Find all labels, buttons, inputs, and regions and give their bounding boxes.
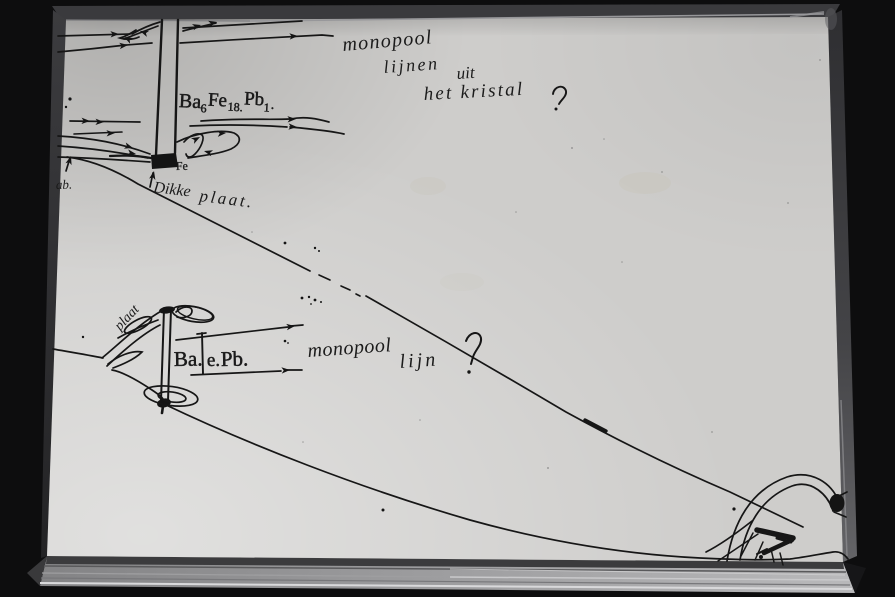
svg-text:lijn: lijn [399,348,439,373]
svg-text:18.: 18. [227,100,243,115]
svg-text:1: 1 [263,100,270,114]
svg-text:Fe: Fe [176,159,188,173]
svg-text:Ba: Ba [178,90,201,113]
svg-text:lijnen: lijnen [383,53,440,77]
svg-text:Pb: Pb [244,88,265,110]
svg-text:ab.: ab. [56,177,73,192]
svg-text:Fe: Fe [207,89,227,111]
svg-text:Pb.: Pb. [221,346,249,371]
svg-text:e.: e. [207,350,221,371]
svg-text:uit: uit [456,63,477,83]
svg-text:Ba.: Ba. [174,346,203,371]
svg-text:6: 6 [200,101,207,115]
